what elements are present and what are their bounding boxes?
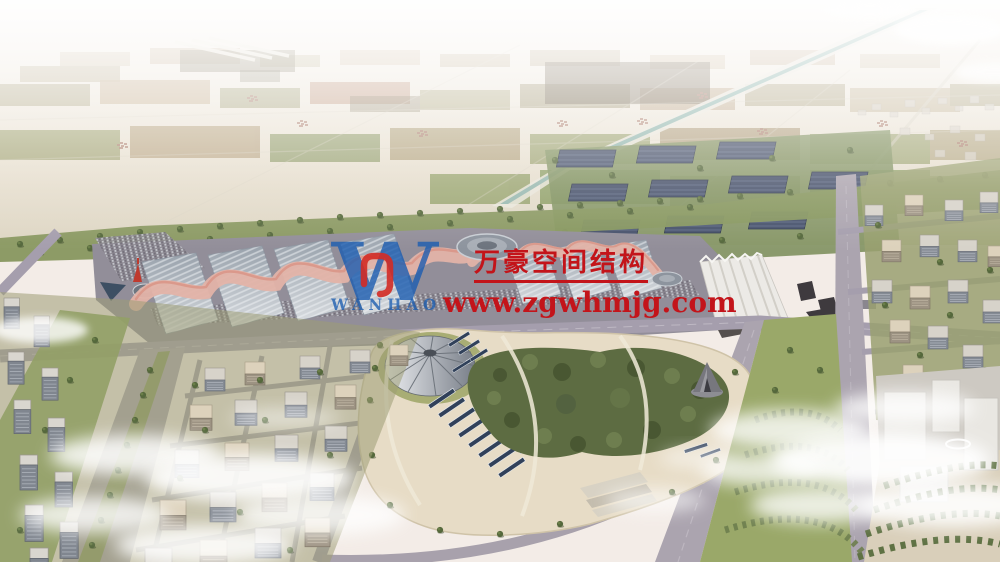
scene-rendering (0, 0, 1000, 562)
horizon-haze (0, 0, 1000, 250)
east-dome (652, 272, 682, 286)
aerial-rendering-image: W WANHAO 万豪空间结构 www.zgwhmjg.com (0, 0, 1000, 562)
